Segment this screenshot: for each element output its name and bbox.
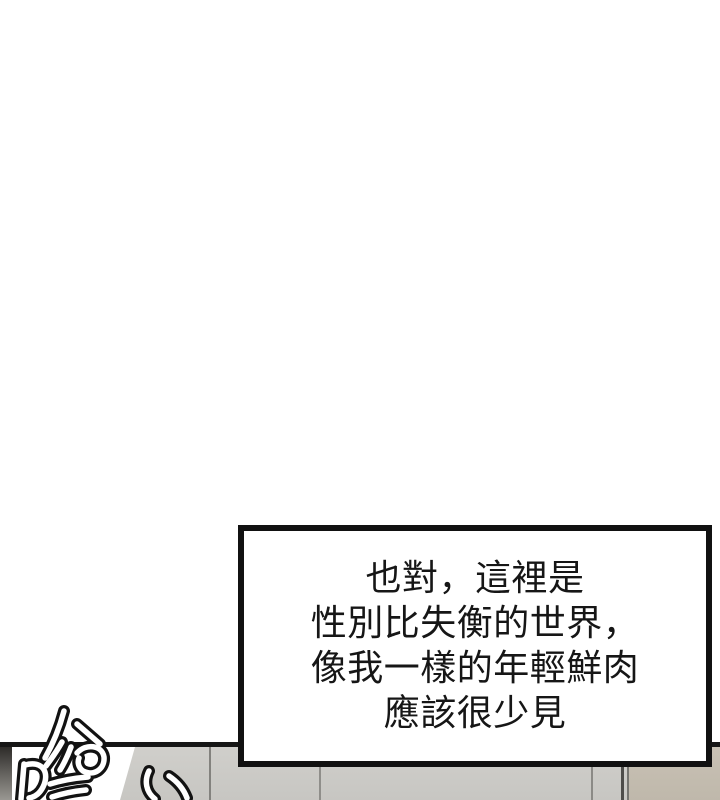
dialog-line: 應該很少見 <box>384 691 567 736</box>
dialog-line: 性別比失衡的世界， <box>311 601 640 646</box>
laugh-sfx-lettering <box>0 700 240 800</box>
comic-page: 也對，這裡是 性別比失衡的世界， 像我一樣的年輕鮮肉 應該很少見 <box>0 0 720 800</box>
dialog-box: 也對，這裡是 性別比失衡的世界， 像我一樣的年輕鮮肉 應該很少見 <box>238 525 712 767</box>
dialog-line: 像我一樣的年輕鮮肉 <box>311 646 640 691</box>
sfx-fill-strokes <box>21 711 187 799</box>
dialog-line: 也對，這裡是 <box>365 556 584 601</box>
